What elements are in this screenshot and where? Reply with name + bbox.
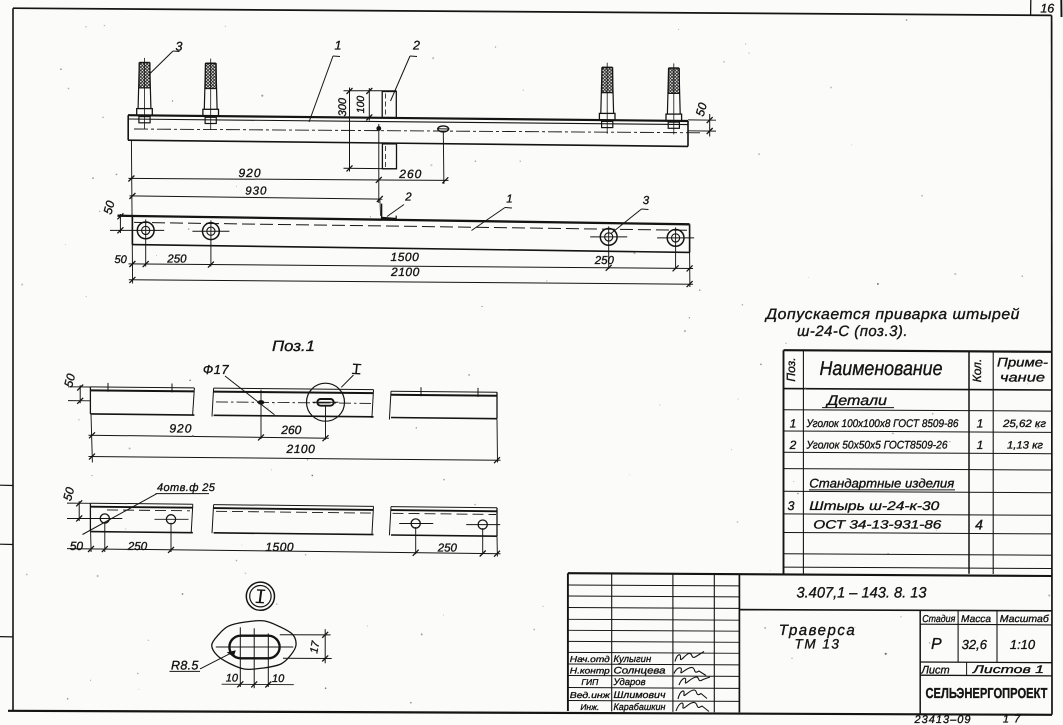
svg-text:СЕЛЬЭНЕРГОПРОЕКТ: СЕЛЬЭНЕРГОПРОЕКТ [926,686,1048,702]
svg-text:Ударов: Ударов [613,677,646,688]
svg-text:930: 930 [245,186,267,198]
svg-text:Шлимович: Шлимович [614,690,666,701]
svg-text:Стадия: Стадия [922,614,956,625]
svg-text:1: 1 [977,438,984,452]
svg-text:2: 2 [789,438,797,452]
svg-text:1: 1 [335,39,342,53]
svg-text:чание: чание [1000,371,1045,385]
svg-text:4отв.ф 25: 4отв.ф 25 [157,482,216,494]
svg-text:10: 10 [272,673,285,685]
svg-text:1: 1 [977,417,984,431]
svg-text:16: 16 [1040,2,1054,16]
svg-text:Кулыгин: Кулыгин [614,654,652,665]
svg-text:Масса: Масса [961,614,991,625]
svg-text:Ф17: Ф17 [203,362,230,377]
svg-text:50: 50 [70,539,84,553]
svg-text:Допускается приварка штырей: Допускается приварка штырей [764,306,1020,323]
svg-text:Инж.: Инж. [580,702,599,712]
svg-text:Солнцева: Солнцева [614,665,666,676]
svg-text:50: 50 [114,254,127,266]
svg-text:Наименование: Наименование [820,358,943,380]
svg-text:ш-24-С (поз.3).: ш-24-С (поз.3). [797,323,908,340]
svg-text:32,6: 32,6 [962,637,988,652]
svg-text:Н.контр: Н.контр [570,665,610,675]
svg-text:920: 920 [238,166,261,180]
svg-text:1 7: 1 7 [1003,713,1021,725]
svg-text:2100: 2100 [390,265,420,279]
svg-text:250: 250 [166,253,187,265]
svg-text:4: 4 [975,517,983,533]
svg-text:Уголок 100х100х8 ГОСТ 8509-86: Уголок 100х100х8 ГОСТ 8509-86 [806,418,960,430]
svg-text:300: 300 [337,97,349,116]
svg-text:1:10: 1:10 [1010,637,1036,652]
svg-text:260: 260 [280,423,301,437]
svg-text:250: 250 [594,255,615,267]
svg-text:25,62 кг: 25,62 кг [1002,418,1046,430]
svg-text:10: 10 [226,673,239,685]
svg-text:920: 920 [169,422,192,436]
svg-text:2: 2 [404,192,412,204]
svg-text:Приме-: Приме- [997,356,1048,370]
svg-text:100: 100 [355,96,367,114]
svg-text:1: 1 [506,194,512,206]
svg-text:1500: 1500 [391,250,420,264]
svg-text:Поз.: Поз. [784,357,798,381]
svg-text:1500: 1500 [265,540,294,554]
svg-text:ОСТ 34-13-931-86: ОСТ 34-13-931-86 [813,518,941,532]
svg-text:Вед.инж: Вед.инж [570,690,611,700]
svg-text:Листов 1: Листов 1 [972,664,1044,676]
svg-text:3.407,1 – 143. 8. 13: 3.407,1 – 143. 8. 13 [797,585,928,602]
svg-text:1,13 кг: 1,13 кг [1007,440,1043,452]
svg-text:250: 250 [127,541,148,553]
svg-text:Кол.: Кол. [970,359,984,383]
svg-text:Масштаб: Масштаб [1000,614,1049,625]
svg-text:Нач.отд: Нач.отд [570,654,610,664]
svg-text:23413–09: 23413–09 [914,714,972,725]
svg-text:3: 3 [643,195,650,207]
svg-text:Штырь ш-24-к-30: Штырь ш-24-к-30 [809,499,939,513]
svg-text:R8.5: R8.5 [171,658,199,672]
svg-text:Карабашкин: Карабашкин [614,702,667,713]
svg-text:1: 1 [790,417,797,431]
svg-text:3: 3 [788,499,795,513]
svg-text:Лист: Лист [920,664,949,676]
svg-text:Уголок 50х50х5 ГОСТ8509-26: Уголок 50х50х5 ГОСТ8509-26 [806,440,949,452]
svg-text:260: 260 [398,167,422,181]
svg-text:Поз.1: Поз.1 [272,338,315,355]
svg-text:Детали: Детали [825,392,888,408]
svg-text:Р: Р [931,636,942,653]
svg-text:Стандартные изделия: Стандартные изделия [809,476,954,490]
svg-text:2: 2 [412,39,420,53]
svg-text:2100: 2100 [286,442,316,456]
svg-text:ТМ 13: ТМ 13 [795,637,841,652]
svg-text:250: 250 [437,543,458,555]
svg-text:ГИП: ГИП [581,677,599,687]
